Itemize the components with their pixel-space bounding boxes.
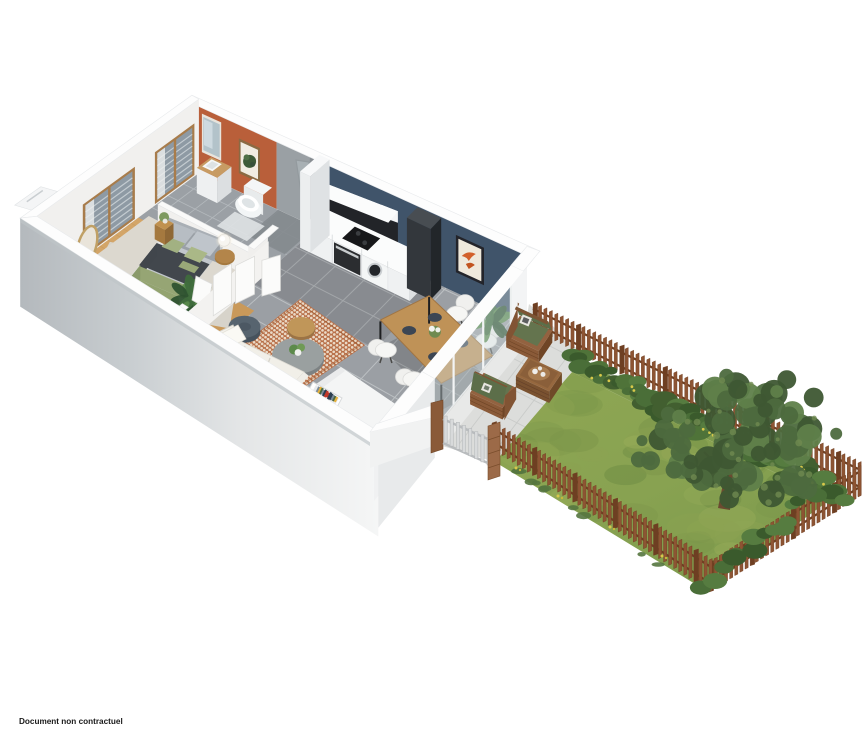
svg-text:Document non contractuel: Document non contractuel [19, 717, 123, 726]
